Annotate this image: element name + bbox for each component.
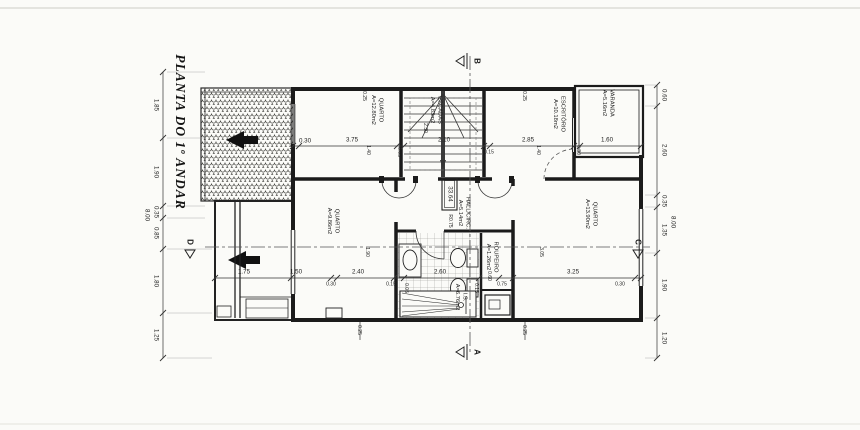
room-label-hall: HALL/CIRC. A=5.14m2	[457, 197, 472, 229]
room-label-varanda: VARANDA A=5.16m2	[601, 89, 616, 117]
dim-mid-8: 0.75	[497, 281, 507, 287]
room-name: ESCRITÓRIO	[559, 96, 566, 132]
dim-top-extra-3: 1.40	[365, 145, 371, 155]
roof-hatch	[201, 88, 293, 201]
room-name: ROUPEIRO	[492, 242, 499, 273]
dim-right-total: 8.00	[670, 216, 677, 228]
room-area: A=4.83m2	[429, 96, 436, 124]
section-marker-d: D	[186, 239, 195, 245]
dim-mid-2: 1.50	[290, 269, 302, 276]
dim-interior-4: 0.05	[403, 283, 409, 293]
dim-right-3: 0.35	[661, 195, 668, 207]
room-label-escadas: ESCADAS A=4.83m2	[429, 96, 444, 124]
dim-top-7: 0.30	[575, 145, 581, 155]
sheet-title: PLANTA DO 1º ANDAR	[172, 54, 188, 209]
dim-right-2: 2.60	[661, 144, 668, 156]
dim-mid-1: 1.75	[238, 269, 250, 276]
dim-top-extra-2: 0.25	[521, 91, 527, 101]
room-name: ESCADAS	[436, 96, 443, 124]
room-label-roupeiro: ROUPEIRO A=1.26m2	[485, 242, 500, 273]
dim-left-4: 0.85	[153, 227, 160, 239]
dim-right-4: 1.35	[661, 224, 668, 236]
dim-mid-3: 0.30	[326, 281, 336, 287]
room-area: A=13.90m2	[584, 199, 591, 229]
dim-top-6: 2.85	[522, 137, 534, 144]
dim-interior-2: 3.05	[538, 247, 544, 257]
room-name: VARANDA	[608, 89, 615, 117]
room-area: A=10.18m2	[552, 96, 559, 132]
room-label-quarto-left: QUARTO A=9.86m2	[326, 208, 341, 235]
dim-right-1: 0.60	[661, 89, 668, 101]
dim-interior-3: 2.30	[422, 123, 428, 133]
dim-left-5: 1.80	[153, 275, 160, 287]
floor-plan-drawing	[0, 0, 860, 430]
room-label-escritorio: ESCRITÓRIO A=10.18m2	[552, 96, 567, 132]
dim-top-4: 2.10	[438, 137, 450, 144]
room-area: A=9.86m2	[326, 208, 333, 235]
level-marker-value: 33.64	[446, 186, 453, 202]
dim-mid-5: 0.15	[386, 281, 396, 287]
dim-top-1: 0.30	[299, 138, 311, 145]
room-name: QUARTO	[377, 95, 384, 125]
dim-interior-1: 1.90	[364, 247, 370, 257]
dim-left-6: 1.25	[153, 329, 160, 341]
section-marker-c: C	[634, 239, 643, 245]
dim-mid-4: 2.40	[352, 269, 364, 276]
dim-bottom-1: 0.25	[356, 325, 362, 335]
room-area: A=5.14m2	[457, 197, 464, 229]
dim-bottom-2: 0.25	[521, 325, 527, 335]
section-marker-b: B	[473, 58, 482, 64]
dim-mid-9: 3.25	[567, 269, 579, 276]
dim-left-1: 1.85	[153, 99, 160, 111]
room-name: QUARTO	[333, 208, 340, 235]
dim-right-5: 1.90	[661, 279, 668, 291]
room-label-quarto-tl: QUARTO A=12.80m2	[370, 95, 385, 125]
room-label-quarto-right: QUARTO A=13.90m2	[584, 199, 599, 229]
dim-top-8: 1.60	[601, 137, 613, 144]
floor-plan-sheet: PLANTA DO 1º ANDAR QUARTO A=12.80m2 ESCA…	[0, 0, 860, 430]
room-area: A=1.26m2	[485, 242, 492, 273]
dim-left-2: 1.90	[153, 166, 160, 178]
section-marker-a: A	[473, 349, 482, 355]
room-area: A=5.16m2	[601, 89, 608, 117]
dim-top-extra-4: 1.40	[535, 145, 541, 155]
dim-interior-5: 0.15	[473, 283, 479, 293]
room-name: I.S.	[461, 284, 468, 311]
dim-mid-10: 0.30	[615, 281, 625, 287]
room-label-is: I.S. A=6.76m2	[454, 284, 469, 311]
dim-top-5: 0.15	[484, 149, 494, 155]
room-area: A=6.76m2	[454, 284, 461, 311]
dim-right-6: 1.20	[661, 332, 668, 344]
room-name: HALL/CIRC.	[464, 197, 471, 229]
room-name: QUARTO	[591, 199, 598, 229]
dim-mid-6: 2.60	[434, 269, 446, 276]
dim-top-2: 3.75	[346, 137, 358, 144]
dim-left-3: 0.35	[153, 206, 160, 218]
dim-left-total: 8.00	[144, 209, 151, 221]
room-area: A=12.80m2	[370, 95, 377, 125]
dim-top-extra-1: 0.25	[361, 91, 367, 101]
scan-edge-lines	[0, 8, 860, 424]
door-radius-label: R0.75	[447, 214, 453, 227]
dim-mid-7: 0.60	[486, 271, 492, 281]
dim-top-3: 0.05	[396, 147, 402, 157]
